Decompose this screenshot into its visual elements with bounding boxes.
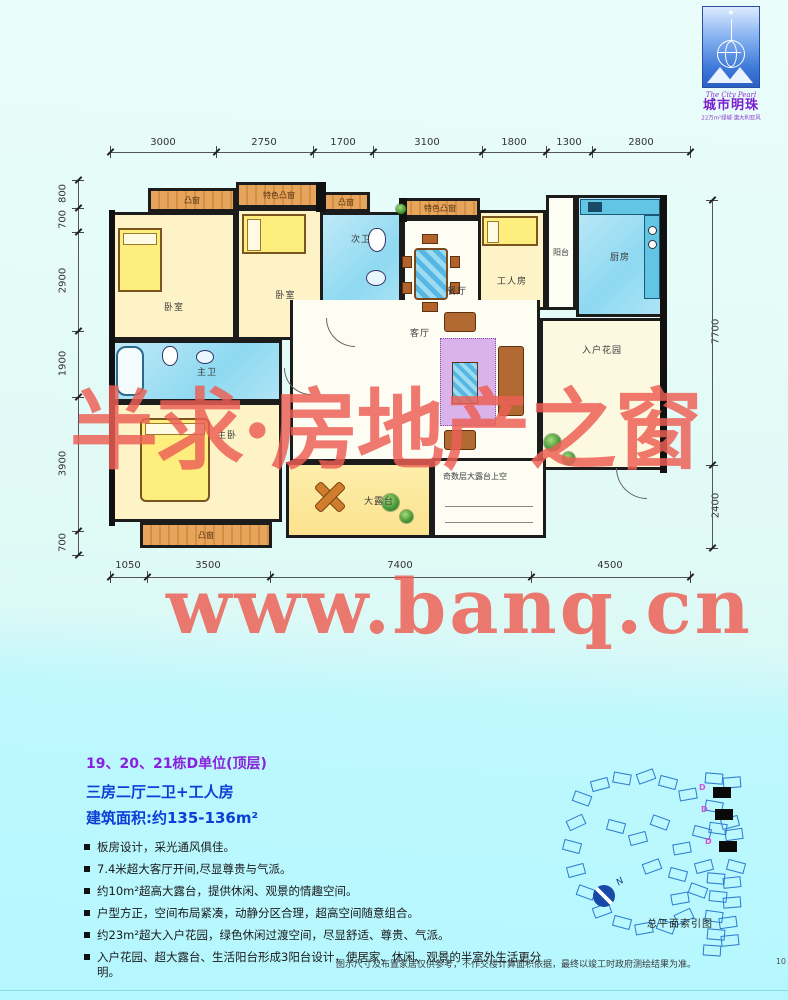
room-bay-window-2: 凸窗 — [322, 192, 370, 212]
unit-area: 建筑面积:约135-136m² — [86, 807, 258, 828]
star-icon: ★ — [727, 9, 734, 17]
site-building — [705, 772, 724, 785]
bathtub — [116, 346, 144, 396]
plant — [562, 452, 575, 465]
brand-name-cn: 城市明珠 — [688, 99, 774, 113]
wash-basin — [196, 350, 214, 364]
feature-item: 户型方正，空间布局紧凑，动静分区合理，超高空间随意组合。 — [84, 906, 554, 921]
void-hatch — [445, 491, 533, 527]
site-building — [720, 934, 739, 947]
plant — [396, 204, 406, 214]
unit-layout: 三房二厅二卫+工人房 — [86, 781, 234, 802]
site-building — [678, 788, 698, 802]
bed — [482, 216, 538, 246]
site-building — [668, 867, 688, 882]
unit-d-marker: D — [705, 837, 712, 846]
dim-top-7: 2800 — [616, 137, 666, 148]
room-feature-bay-1: 特色凸窗 — [236, 182, 322, 208]
dim-top-1: 3000 — [138, 137, 188, 148]
unit-title: 19、20、21栋D单位(顶层) — [86, 753, 267, 773]
north-compass-icon — [593, 885, 615, 907]
wall-segment — [109, 210, 115, 526]
site-building — [642, 858, 663, 874]
armchair — [444, 312, 476, 332]
site-plan: D D D N 总平面索引图 — [555, 765, 783, 960]
site-building — [590, 777, 610, 792]
footer-divider — [0, 990, 788, 991]
room-bay-window-1: 凸窗 — [148, 188, 236, 212]
sofa — [498, 346, 524, 416]
site-building — [703, 944, 722, 956]
watermark-url: www.banq.cn — [166, 562, 753, 651]
site-building — [658, 775, 678, 790]
dim-left-6: 700 — [58, 523, 69, 563]
floor-plan: 凸窗 卧室 特色凸窗 卧室 凸窗 次卫 特色凸窗 餐厅 工人房 阳台 厨房 主卫… — [100, 170, 700, 562]
logo-emblem-icon: ★ — [702, 6, 760, 88]
north-label: N — [615, 876, 626, 888]
site-plan-caption: 总平面索引图 — [610, 915, 750, 930]
chair — [402, 256, 412, 268]
chair — [450, 256, 460, 268]
site-building-unit-d — [713, 787, 731, 798]
site-building — [672, 842, 692, 856]
chair — [402, 282, 412, 294]
kitchen-sink — [588, 202, 602, 212]
chair — [422, 234, 438, 244]
room-terrace: 大露台 — [286, 462, 432, 538]
mountain-icon — [727, 67, 753, 83]
plant — [544, 434, 561, 451]
dim-top-2: 2750 — [239, 137, 289, 148]
dim-top-4: 3100 — [402, 137, 452, 148]
site-building — [650, 814, 671, 830]
plant — [400, 510, 413, 523]
door-arc — [284, 368, 311, 395]
brand-tagline: 22万m²绿城·澳大利亚风 — [692, 113, 769, 121]
site-building — [670, 892, 690, 906]
brochure-page: ★ The City Pearl 城市明珠 22万m²绿城·澳大利亚风 3000… — [0, 0, 788, 1000]
feature-item: 7.4米超大客厅开间,尽显尊贵与气派。 — [84, 862, 554, 877]
chair — [422, 302, 438, 312]
room-feature-bay-2: 特色凸窗 — [400, 198, 480, 218]
dim-top-3: 1700 — [318, 137, 368, 148]
stove-burner — [648, 226, 657, 235]
dim-left-3: 2900 — [58, 261, 69, 301]
wall-segment — [660, 195, 667, 473]
dim-left-5: 3900 — [58, 444, 69, 484]
site-building — [722, 876, 741, 889]
site-building — [612, 772, 632, 786]
dim-top-6: 1300 — [544, 137, 594, 148]
master-bed — [140, 418, 210, 502]
feature-item: 板房设计，采光通风俱佳。 — [84, 840, 554, 855]
feature-item: 约10m²超高大露台，提供休闲、观景的情趣空间。 — [84, 884, 554, 899]
site-building — [724, 828, 743, 841]
brand-logo: ★ The City Pearl 城市明珠 22万m²绿城·澳大利亚风 — [688, 6, 774, 122]
globe-icon — [717, 40, 745, 68]
toilet — [162, 346, 178, 366]
room-balcony: 阳台 — [546, 195, 576, 310]
dim-top-5: 1800 — [489, 137, 539, 148]
room-open-above: 奇数层大露台上空 — [432, 458, 546, 538]
site-building — [628, 831, 648, 846]
site-building — [688, 882, 709, 898]
bed — [242, 214, 306, 254]
coffee-table — [452, 362, 478, 404]
site-building — [566, 814, 587, 832]
site-building-unit-d — [719, 841, 737, 852]
unit-d-marker: D — [699, 783, 706, 792]
dim-left-2: 700 — [58, 200, 69, 240]
site-building — [562, 839, 582, 854]
armchair — [444, 430, 476, 450]
wash-basin — [366, 270, 386, 286]
dim-left-4: 1900 — [58, 344, 69, 384]
bed — [118, 228, 162, 292]
site-building-unit-d — [715, 809, 733, 820]
site-building — [566, 863, 586, 878]
site-building — [606, 819, 626, 834]
disclaimer-text: 图示尺寸及布置家居仅供参考，不作交楼计算面积依据，最终以竣工时政府测绘结果为准。 — [336, 957, 696, 970]
dining-table — [414, 248, 448, 300]
site-building — [723, 896, 742, 909]
feature-item: 约23m²超大入户花园，绿色休闲过渡空间，尽显舒适、尊贵、气派。 — [84, 928, 554, 943]
room-bay-window-3: 凸窗 — [140, 522, 272, 548]
wall-segment — [316, 182, 326, 212]
mast-line — [731, 19, 732, 41]
unit-d-marker: D — [701, 805, 708, 814]
site-building — [726, 859, 746, 874]
page-number: 10 — [776, 957, 786, 966]
door-arc — [616, 468, 647, 499]
site-building — [636, 768, 657, 784]
stove-burner — [648, 240, 657, 249]
site-building — [572, 790, 593, 806]
